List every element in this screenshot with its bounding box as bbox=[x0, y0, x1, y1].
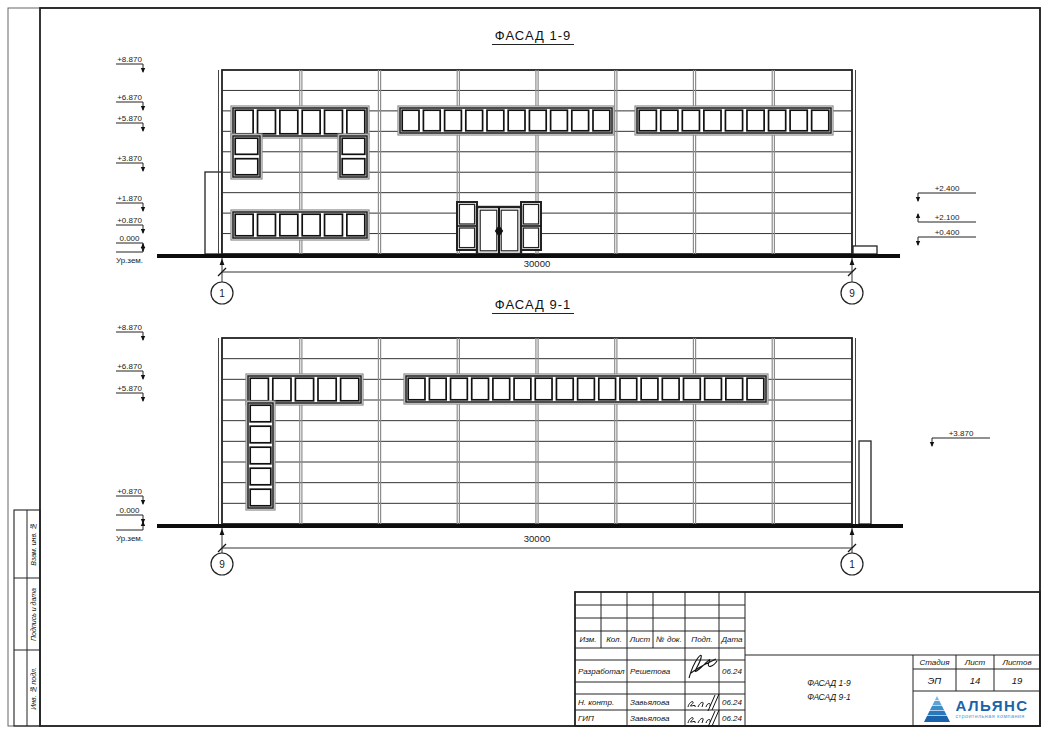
tb-gip-role: ГИП bbox=[575, 710, 630, 726]
svg-text:+1.870: +1.870 bbox=[117, 194, 142, 203]
svg-text:+8.870: +8.870 bbox=[117, 323, 142, 332]
logo-text: АЛЬЯНС строительная компания bbox=[955, 698, 1028, 720]
company-logo: АЛЬЯНС строительная компания bbox=[913, 691, 1040, 726]
tb-sheets-value: 19 bbox=[994, 669, 1040, 691]
tb-document-name: ФАСАД 1-9 ФАСАД 9-1 bbox=[745, 655, 913, 726]
tb-document-name-line2: ФАСАД 9-1 bbox=[807, 691, 851, 704]
svg-text:+5.870: +5.870 bbox=[117, 384, 142, 393]
sidebar-cell-podpis: Подпись и дата bbox=[27, 578, 40, 650]
facade-drawing-canvas: 1930000+8.870+6.870+5.870+3.870+1.870+0.… bbox=[0, 0, 1047, 733]
svg-text:+5.870: +5.870 bbox=[117, 114, 142, 123]
svg-text:1: 1 bbox=[849, 559, 855, 570]
svg-text:+0.400: +0.400 bbox=[935, 228, 960, 237]
tb-sheet-header: Лист bbox=[956, 655, 994, 669]
tb-developer-name: Решетова bbox=[627, 660, 688, 682]
logo-pyramid-icon bbox=[924, 696, 950, 722]
sidebar-cell-inv: Инв. № подл. bbox=[27, 650, 40, 726]
tb-stage-header: Стадия bbox=[913, 655, 956, 669]
tb-col-data: Дата bbox=[719, 631, 745, 648]
tb-developer-role: Разработал bbox=[575, 660, 630, 682]
svg-text:+0.870: +0.870 bbox=[117, 216, 142, 225]
tb-col-list: Лист bbox=[627, 631, 653, 648]
tb-ncontr-date: 06.24 bbox=[719, 694, 745, 710]
tb-gip-date: 06.24 bbox=[719, 710, 745, 726]
svg-text:+3.870: +3.870 bbox=[117, 154, 142, 163]
svg-text:+0.870: +0.870 bbox=[117, 487, 142, 496]
logo-company-name: АЛЬЯНС bbox=[955, 698, 1028, 713]
svg-text:0.000: 0.000 bbox=[119, 506, 140, 515]
svg-text:Ур.зем.: Ур.зем. bbox=[116, 534, 143, 543]
svg-text:0.000: 0.000 bbox=[119, 234, 140, 243]
facade-1-9: 1930000+8.870+6.870+5.870+3.870+1.870+0.… bbox=[116, 55, 976, 305]
svg-text:+8.870: +8.870 bbox=[117, 55, 142, 64]
tb-ncontr-role: Н. контр. bbox=[575, 694, 630, 710]
svg-text:30000: 30000 bbox=[524, 258, 550, 269]
sidebar-cell-vzam: Взам. инв. № bbox=[27, 510, 40, 578]
signature-ncontr bbox=[688, 694, 719, 711]
tb-document-name-line1: ФАСАД 1-9 bbox=[807, 677, 851, 690]
svg-text:+6.870: +6.870 bbox=[117, 362, 142, 371]
tb-gip-name: Завьялова bbox=[627, 710, 688, 726]
signature-gip bbox=[688, 710, 719, 727]
svg-text:9: 9 bbox=[219, 559, 225, 570]
sidebar-label-vzam: Взам. инв. № bbox=[30, 523, 37, 566]
signature-developer bbox=[689, 655, 717, 678]
tb-sheets-header: Листов bbox=[994, 655, 1040, 669]
facade-title-bottom-text: ФАСАД 9-1 bbox=[492, 297, 574, 314]
facade-title-bottom: ФАСАД 9-1 bbox=[423, 295, 643, 314]
svg-text:Ур.зем.: Ур.зем. bbox=[116, 256, 143, 265]
svg-text:9: 9 bbox=[849, 288, 855, 299]
svg-text:+2.100: +2.100 bbox=[935, 213, 960, 222]
tb-ncontr-name: Завьялова bbox=[627, 694, 688, 710]
tb-col-ndok: № док. bbox=[653, 631, 685, 648]
tb-stage-value: ЭП bbox=[913, 669, 956, 691]
tb-sheet-value: 14 bbox=[956, 669, 994, 691]
sidebar-label-podpis: Подпись и дата bbox=[30, 588, 37, 641]
svg-text:+6.870: +6.870 bbox=[117, 93, 142, 102]
svg-text:30000: 30000 bbox=[524, 533, 550, 544]
tb-developer-date: 06.24 bbox=[719, 660, 745, 682]
tb-col-izm: Изм. bbox=[575, 631, 601, 648]
tb-col-kol: Кол. bbox=[601, 631, 627, 648]
facade-title-top: ФАСАД 1-9 bbox=[423, 26, 643, 45]
svg-text:+2.400: +2.400 bbox=[935, 184, 960, 193]
tb-col-podp: Подп. bbox=[685, 631, 719, 648]
svg-text:+3.870: +3.870 bbox=[949, 429, 974, 438]
svg-text:1: 1 bbox=[219, 288, 225, 299]
facade-title-top-text: ФАСАД 1-9 bbox=[492, 28, 574, 45]
sidebar-label-inv: Инв. № подл. bbox=[30, 667, 37, 710]
facade-9-1: 9130000+8.870+6.870+5.870+0.8700.000Ур.з… bbox=[116, 323, 990, 576]
logo-company-subtitle: строительная компания bbox=[955, 714, 1028, 720]
drawing-sheet: 1930000+8.870+6.870+5.870+3.870+1.870+0.… bbox=[0, 0, 1047, 733]
